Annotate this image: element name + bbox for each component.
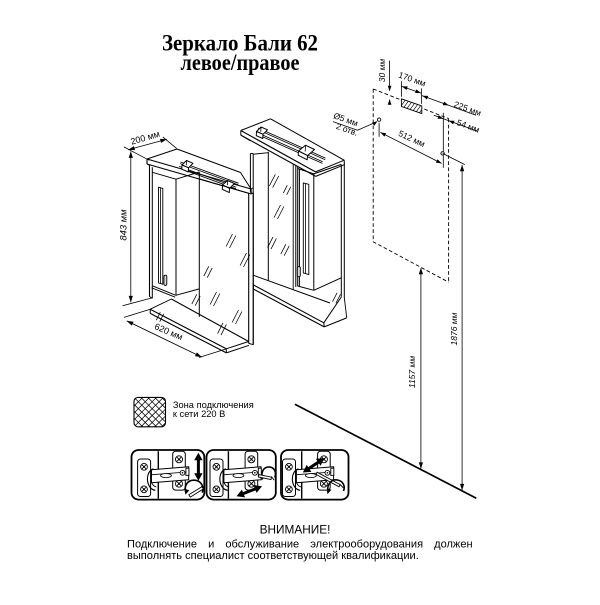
svg-text:54 мм: 54 мм <box>455 117 481 134</box>
svg-text:225 мм: 225 мм <box>453 99 483 118</box>
svg-text:1157 мм: 1157 мм <box>407 356 417 388</box>
svg-text:к сети 220 В: к сети 220 В <box>173 409 226 419</box>
svg-text:512 мм: 512 мм <box>397 128 427 149</box>
svg-text:ВНИМАНИЕ!: ВНИМАНИЕ! <box>260 523 331 537</box>
svg-text:30 мм: 30 мм <box>377 59 387 83</box>
svg-text:выполнять специалист соответст: выполнять специалист соответствующей ква… <box>127 550 419 562</box>
svg-text:1876 мм: 1876 мм <box>449 312 459 345</box>
svg-text:левое/правое: левое/правое <box>181 50 300 75</box>
svg-text:843 мм: 843 мм <box>117 209 128 241</box>
svg-text:200 мм: 200 мм <box>129 129 161 147</box>
svg-text:Подключение и обслуживание эле: Подключение и обслуживание электрооборуд… <box>127 539 473 551</box>
